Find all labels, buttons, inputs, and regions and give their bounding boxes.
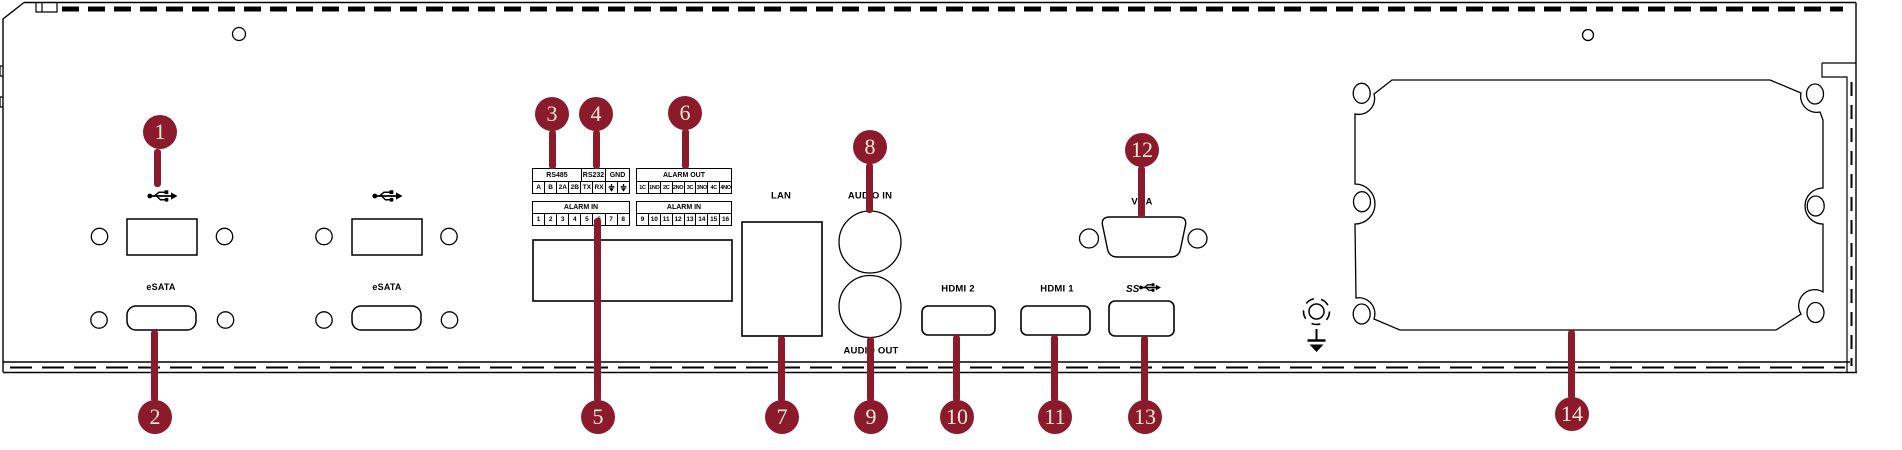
callout-11: 11 bbox=[1038, 400, 1072, 434]
screw-hole bbox=[441, 312, 457, 328]
screw-hole bbox=[1353, 304, 1370, 324]
screw-hole bbox=[441, 228, 457, 244]
callout-10: 10 bbox=[940, 400, 974, 434]
alarm-in-left-block: ALARM IN 1 2 3 4 5 6 7 8 bbox=[532, 201, 630, 226]
callout-11-stem bbox=[1051, 335, 1058, 402]
callout-9-stem bbox=[867, 337, 874, 402]
screw-hole bbox=[233, 28, 246, 41]
rear-panel-line-art: SS bbox=[0, 0, 1902, 450]
callout-14: 14 bbox=[1555, 397, 1589, 431]
screw-hole bbox=[217, 312, 233, 328]
screw-hole bbox=[1807, 84, 1824, 104]
hdmi2-port bbox=[922, 306, 995, 335]
screw-hole bbox=[91, 228, 107, 244]
callout-8-stem bbox=[866, 163, 873, 213]
callout-12-stem bbox=[1138, 166, 1145, 218]
superspeed-usb-icon: SS bbox=[1126, 283, 1161, 295]
terminal-cell: 8 bbox=[617, 213, 630, 226]
lan-label: LAN bbox=[771, 191, 791, 202]
usb3-port bbox=[1109, 301, 1174, 336]
hdmi2-label: HDMI 2 bbox=[941, 284, 974, 295]
esata-label: eSATA bbox=[372, 282, 401, 292]
callout-10-stem bbox=[953, 335, 960, 402]
hdmi1-label: HDMI 1 bbox=[1040, 284, 1073, 295]
esata-port bbox=[127, 306, 196, 330]
callout-6: 6 bbox=[668, 96, 702, 130]
callout-5-stem bbox=[594, 218, 601, 402]
callout-2: 2 bbox=[138, 400, 172, 434]
alarm-in-right-block: ALARM IN 9 10 11 12 13 14 15 16 bbox=[636, 201, 732, 226]
callout-14-stem bbox=[1568, 330, 1575, 399]
usb-port bbox=[352, 219, 422, 255]
serial-terminal-block: RS485 RS232 GND A B 2A 2B TX RX bbox=[532, 168, 630, 194]
superspeed-label: SS bbox=[1126, 284, 1140, 295]
callout-1: 1 bbox=[143, 115, 177, 149]
callout-9: 9 bbox=[854, 400, 888, 434]
callout-6-stem bbox=[682, 129, 689, 169]
alarm-out-label: ALARM OUT bbox=[636, 168, 732, 182]
callout-3-stem bbox=[549, 130, 556, 169]
rs485-label: RS485 bbox=[532, 168, 582, 182]
screw-hole bbox=[1080, 229, 1099, 248]
screw-hole bbox=[316, 228, 332, 244]
hdmi1-port bbox=[1021, 306, 1090, 335]
callout-3: 3 bbox=[535, 97, 569, 131]
callout-1-stem bbox=[154, 149, 161, 187]
alarm-out-block: ALARM OUT 1C 1NO 2C 2NO 3C 3NO 4C 4NO bbox=[636, 168, 732, 194]
screw-hole bbox=[1353, 83, 1370, 103]
screw-hole bbox=[216, 228, 232, 244]
screw-hole bbox=[316, 312, 332, 328]
callout-13: 13 bbox=[1128, 400, 1162, 434]
callout-7-stem bbox=[778, 336, 785, 402]
esata-port bbox=[352, 306, 421, 330]
screw-hole bbox=[1807, 303, 1824, 323]
terminal-connector bbox=[533, 240, 732, 301]
callout-5: 5 bbox=[581, 400, 615, 434]
callout-2-stem bbox=[151, 330, 158, 402]
usb-icon bbox=[372, 190, 402, 202]
callout-4-stem bbox=[593, 130, 600, 169]
rs232-label: RS232 bbox=[581, 168, 606, 182]
ground-icon bbox=[617, 181, 630, 194]
ground-screw bbox=[1304, 299, 1330, 325]
screw-hole bbox=[1354, 192, 1371, 212]
callout-12: 12 bbox=[1125, 133, 1159, 167]
chassis-outline bbox=[0, 3, 1857, 374]
rear-panel-diagram: SS bbox=[0, 0, 1902, 450]
terminal-cell: 4NO bbox=[719, 181, 732, 194]
power-supply-plate bbox=[1353, 80, 1824, 330]
screw-hole bbox=[91, 312, 107, 328]
vga-port bbox=[1080, 217, 1208, 257]
audio-in-port bbox=[839, 211, 901, 273]
gnd-label: GND bbox=[605, 168, 630, 182]
usb-port bbox=[127, 219, 197, 255]
callout-4: 4 bbox=[579, 97, 613, 131]
lan-port bbox=[742, 222, 822, 336]
screw-hole bbox=[1807, 196, 1824, 216]
terminal-cell: 16 bbox=[719, 213, 732, 226]
callout-7: 7 bbox=[765, 400, 799, 434]
callout-13-stem bbox=[1141, 336, 1148, 402]
ground-icon bbox=[1308, 329, 1326, 352]
usb-icon bbox=[147, 190, 177, 202]
screw-hole bbox=[1583, 30, 1594, 41]
esata-label: eSATA bbox=[146, 282, 175, 292]
audio-out-port bbox=[839, 276, 901, 338]
screw-hole bbox=[1188, 229, 1207, 248]
callout-8: 8 bbox=[853, 130, 887, 164]
